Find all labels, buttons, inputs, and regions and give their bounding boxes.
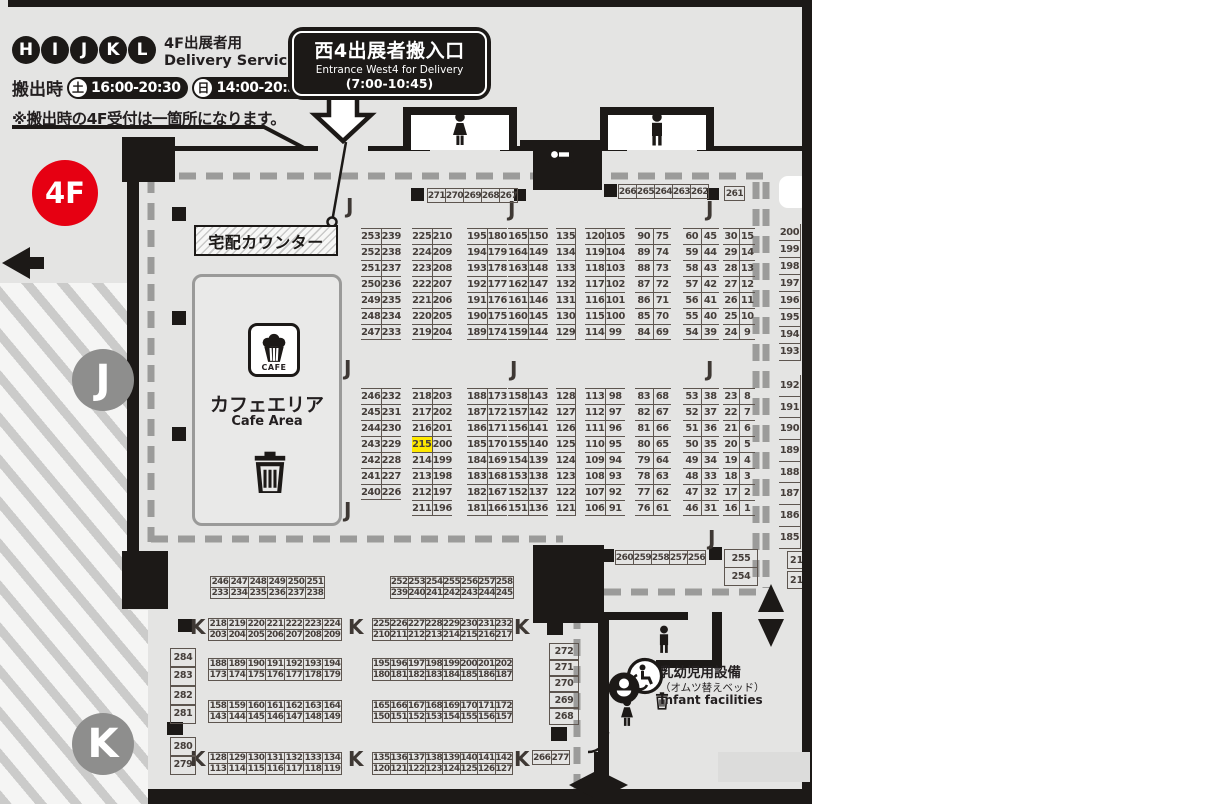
booth-cell: 61: [654, 500, 672, 516]
booth-cell: 224: [322, 619, 342, 629]
booth-cell: 127: [495, 764, 514, 774]
booth-cell: 201: [433, 420, 453, 436]
booth-cell: 28: [723, 260, 740, 276]
booth-cell: 1: [740, 500, 756, 516]
booth-cell: 11: [740, 292, 756, 308]
booth-cell: 185: [460, 670, 478, 680]
booth-cell: 266: [532, 751, 551, 764]
booth-cell: 118: [303, 764, 322, 774]
booth-cell: 231: [477, 619, 495, 629]
booth-cell: 127: [556, 404, 576, 420]
booth-cell: 113: [585, 388, 606, 404]
booth-cell: 211: [390, 630, 408, 640]
booth-cell: 207: [433, 276, 453, 292]
booth-cell: 190: [779, 418, 801, 440]
booth-cell: 203: [208, 630, 227, 640]
booth-cell: 163: [303, 701, 322, 711]
booth-cell: 235: [248, 588, 267, 598]
booth-cell: 181: [467, 500, 488, 516]
booth-cell: 9: [740, 324, 756, 340]
booth-cell: 10: [740, 308, 756, 324]
booth-cell: 205: [433, 308, 453, 324]
booth-cell: 162: [508, 276, 529, 292]
booth-cell: 47: [683, 484, 702, 500]
booth-cell: 123: [556, 468, 576, 484]
booth-cell: 180: [488, 228, 508, 244]
booth-cell: 167: [407, 701, 425, 711]
booth-cell: 143: [529, 388, 549, 404]
booth-cell: 250: [361, 276, 382, 292]
booth-cell: 247: [361, 324, 382, 340]
booth-strip: 9075897488738772867185708469: [635, 228, 671, 340]
booth-cell: 178: [303, 670, 322, 680]
booth-cell: 160: [246, 701, 265, 711]
floor-badge: 4F: [32, 160, 98, 226]
booth-cell: 240: [408, 588, 426, 598]
wall-gap: [718, 752, 810, 782]
booth-cell: 158: [508, 388, 529, 404]
booth-cell: 104: [606, 244, 626, 260]
entrance-title: 西4出展者搬入口: [314, 36, 464, 63]
booth-cell: 156: [508, 420, 529, 436]
booth-cell: 72: [654, 276, 672, 292]
booth-cell: 146: [529, 292, 549, 308]
booth-cell: 217: [412, 404, 433, 420]
booth-cell: 144: [529, 324, 549, 340]
booth-cell: 89: [635, 244, 654, 260]
booth-cell: 150: [529, 228, 549, 244]
booth-cell: 94: [606, 452, 626, 468]
j-label: J: [706, 357, 713, 381]
booth-cell: 170: [488, 436, 508, 452]
booth-cell: 156: [477, 712, 495, 722]
booth-cell: 86: [635, 292, 654, 308]
booth-cell: 216: [477, 630, 495, 640]
booth-cell: 265: [636, 185, 654, 198]
booth-cell: 232: [382, 388, 402, 404]
booth-cell: 212: [412, 484, 433, 500]
booth-cell: 191: [467, 292, 488, 308]
booth-cell: 76: [635, 500, 654, 516]
booth-cell: 38: [702, 388, 720, 404]
booth-cell: 188: [467, 388, 488, 404]
booth-strip: 301529142813271226112510249: [723, 228, 755, 340]
booth-krow: 1281291301311321331341131141151161171181…: [208, 752, 342, 775]
booth-cell: 55: [683, 308, 702, 324]
booth-krow: 1581591601611621631641431441451461471481…: [208, 700, 342, 723]
booth-cell: 112: [585, 404, 606, 420]
booth-cell: 139: [529, 452, 549, 468]
booth-cell: 109: [585, 452, 606, 468]
booth-cell: 199: [433, 452, 453, 468]
booth-cell: 204: [227, 630, 246, 640]
booth-cell: 20: [723, 436, 740, 452]
infant-line3: Infant facilities: [660, 694, 764, 708]
booth-cell: 226: [390, 619, 408, 629]
booth-cell: 66: [654, 420, 672, 436]
booth-cell: 82: [635, 404, 654, 420]
booth-cell: 116: [585, 292, 606, 308]
booth-row: 271270269268267: [427, 188, 518, 203]
booth-cell: 113: [208, 764, 227, 774]
booth-cell: 166: [390, 701, 408, 711]
booth-cell: 222: [284, 619, 303, 629]
booth-cell: 188: [208, 659, 227, 669]
booth-cell: 136: [390, 753, 408, 763]
booth-cell: 213: [425, 630, 443, 640]
booth-cell: 35: [702, 436, 720, 452]
booth-cell: 233: [210, 588, 229, 598]
booth-cell: 54: [683, 324, 702, 340]
booth-cell: 138: [425, 753, 443, 763]
booth-cell: 165: [508, 228, 529, 244]
booth-cell: 269: [549, 691, 579, 709]
booth-cell: 36: [702, 420, 720, 436]
booth-cell: 134: [322, 753, 342, 763]
booth-cell: 18: [723, 468, 740, 484]
booth-cell: 186: [779, 505, 801, 527]
booth-cell: 221: [412, 292, 433, 308]
booth-cell: 250: [286, 577, 305, 587]
booth-cell: 254: [425, 577, 443, 587]
booth-strip: 53385237513650354934483347324631: [683, 388, 719, 516]
booth-cell: 21: [723, 420, 740, 436]
booth-cell: 241: [361, 468, 382, 484]
booth-cell: 233: [382, 324, 402, 340]
booth-cell: 187: [495, 670, 514, 680]
booth-cell: 25: [723, 308, 740, 324]
booth-cell: 23: [723, 388, 740, 404]
booth-cell: 253: [408, 577, 426, 587]
booth-cell: 117: [585, 276, 606, 292]
booth-cell: 229: [442, 619, 460, 629]
booth-cell: 205: [246, 630, 265, 640]
booth-cell: 154: [508, 452, 529, 468]
booth-cell: 243: [460, 588, 478, 598]
booth-cell: 128: [208, 753, 227, 763]
booth-cell: 44: [702, 244, 720, 260]
booth-cell: 267: [499, 189, 518, 202]
booth-cell: 14: [740, 244, 756, 260]
booth-cell: 136: [529, 500, 549, 516]
booth-cell: 194: [467, 244, 488, 260]
booth-cell: 195: [467, 228, 488, 244]
booth-cell: 221: [265, 619, 284, 629]
k-label: K: [190, 615, 206, 639]
booth-cell: 126: [477, 764, 495, 774]
booth-cell: 249: [361, 292, 382, 308]
booth-cell: 208: [433, 260, 453, 276]
booth-cell: 148: [529, 260, 549, 276]
booth-cell: 62: [654, 484, 672, 500]
booth-cell: 161: [508, 292, 529, 308]
booth-cell: 50: [683, 436, 702, 452]
booth-cell: 251: [305, 577, 325, 587]
booth-cell: 133: [556, 260, 576, 276]
booth-cell: 69: [654, 324, 672, 340]
booth-cell: 192: [467, 276, 488, 292]
booth-cell: 78: [635, 468, 654, 484]
booth-cell: 229: [382, 436, 402, 452]
booth-cell: 193: [467, 260, 488, 276]
booth-cell: 217: [495, 630, 514, 640]
booth-cell: 243: [361, 436, 382, 452]
booth-cell: 255: [724, 549, 758, 568]
booth-cell: 206: [265, 630, 284, 640]
booth-cell: 105: [606, 228, 626, 244]
booth-cell: 254: [724, 567, 758, 586]
booth-cell: 150: [372, 712, 390, 722]
facility-sign-icon: [546, 146, 574, 163]
j-label: J: [344, 498, 351, 522]
booth-cell: 155: [508, 436, 529, 452]
booth-cell: 122: [556, 484, 576, 500]
booth-cell: 228: [382, 452, 402, 468]
booth-cell: 206: [433, 292, 453, 308]
booth-pair: 282281: [170, 686, 196, 724]
k-label: K: [514, 615, 530, 639]
saturday-time: 16:00-20:30: [91, 80, 180, 96]
booth-cell: 51: [683, 420, 702, 436]
booth-cell: 19: [723, 452, 740, 468]
booth-cell: 58: [683, 260, 702, 276]
booth-cell: 138: [529, 468, 549, 484]
booth-cell: 235: [382, 292, 402, 308]
booth-strip: 238227216205194183172161: [723, 388, 755, 516]
booth-cell: 202: [495, 659, 514, 669]
booth-cell: 159: [227, 701, 246, 711]
booth-cell: 255: [443, 577, 461, 587]
booth-cell: 249: [267, 577, 286, 587]
booth-cell: 180: [372, 670, 390, 680]
booth-cell: 252: [390, 577, 408, 587]
booth-row: 266277: [532, 750, 570, 765]
booth-cell: 222: [412, 276, 433, 292]
booth-cell: 169: [442, 701, 460, 711]
booth-cell: 212: [407, 630, 425, 640]
times-label: 搬出時: [12, 75, 63, 100]
booth-cell: 171: [488, 420, 508, 436]
booth-cell: 149: [529, 244, 549, 260]
booth-cell: 227: [382, 468, 402, 484]
booth-cell: 270: [445, 189, 463, 202]
booth-cell: 188: [779, 462, 801, 484]
booth-cell: 130: [246, 753, 265, 763]
booth-cell: 181: [390, 670, 408, 680]
booth-cell: 148: [303, 712, 322, 722]
booth-cell: 190: [467, 308, 488, 324]
booth-cell: 70: [654, 308, 672, 324]
hall-badge-h: H: [12, 36, 40, 64]
j-label: J: [706, 197, 713, 221]
booth-cell: 102: [606, 276, 626, 292]
booth-cell: 98: [606, 388, 626, 404]
booth-cell: 45: [702, 228, 720, 244]
booth-cell: 13: [740, 260, 756, 276]
cafe-icon: CAFE: [248, 323, 300, 377]
booth-cell: 242: [443, 588, 461, 598]
booth-cell: 141: [477, 753, 495, 763]
booth-cell: 248: [361, 308, 382, 324]
booth-cell: 12: [740, 276, 756, 292]
booth-cell: 268: [549, 707, 579, 725]
booth-cell: 30: [723, 228, 740, 244]
booth-cell: 262: [690, 185, 709, 198]
booth-cell: 231: [382, 404, 402, 420]
booth-cell: 272: [549, 643, 579, 661]
booth-cell: 100: [606, 308, 626, 324]
booth-cell: 161: [265, 701, 284, 711]
booth-strip: 2462322452312442302432292422282412272402…: [361, 388, 401, 500]
booth-cell: 140: [460, 753, 478, 763]
booth-cell: 90: [635, 228, 654, 244]
entrance-callout: 西4出展者搬入口 Entrance West4 for Delivery (7:…: [288, 27, 491, 100]
booth-cell: 162: [284, 701, 303, 711]
booth-cell: 88: [635, 260, 654, 276]
booth-krow: 2182192202212222232242032042052062072082…: [208, 618, 342, 641]
booth-cell: 151: [508, 500, 529, 516]
booth-cell: 164: [508, 244, 529, 260]
baby-icon: [609, 673, 640, 704]
west-arrow-icon: [2, 247, 44, 279]
booth-cell: 197: [433, 484, 453, 500]
booth-cell: 157: [508, 404, 529, 420]
booth-cell: 107: [585, 484, 606, 500]
booth-cell: 271: [427, 189, 445, 202]
booth-cell: 232: [495, 619, 514, 629]
booth-cell: 56: [683, 292, 702, 308]
booth-cell: 194: [779, 327, 801, 344]
saturday-badge: 土: [69, 79, 87, 97]
booth-cell: 40: [702, 308, 720, 324]
booth-cell: 128: [556, 388, 576, 404]
booth-cell: 214: [412, 452, 433, 468]
booth-cell: 153: [508, 468, 529, 484]
booth-cell: 196: [390, 659, 408, 669]
booth-cell: 185: [779, 527, 801, 549]
booth-cell: 131: [265, 753, 284, 763]
booth-cell: 239: [382, 228, 402, 244]
infant-line2: （オムツ替えベッド）: [660, 682, 764, 694]
floor-map-4f: H I J K L 4F出展者用 Delivery Service 搬出時 土 …: [0, 0, 1206, 804]
booth-cell: 261: [724, 187, 745, 200]
booth-cell: 7: [740, 404, 756, 420]
booth-cell: 97: [606, 404, 626, 420]
booth-cell: 264: [654, 185, 672, 198]
booth-cell: 122: [407, 764, 425, 774]
booth-cell: 198: [425, 659, 443, 669]
booth-cell: 120: [372, 764, 390, 774]
booth-pair: 255254: [724, 549, 758, 586]
entrance-arrow-icon: [315, 97, 371, 141]
legend-note: ※搬出時の4F受付は一箇所になります。: [12, 107, 314, 129]
down-arrow-icon: [758, 619, 784, 647]
booth-cell: 140: [529, 436, 549, 452]
booth-cell: 209: [433, 244, 453, 260]
section-j-circle: J: [72, 349, 134, 411]
booth-cell: 158: [208, 701, 227, 711]
map-canvas: H I J K L 4F出展者用 Delivery Service 搬出時 土 …: [0, 0, 812, 804]
booth-cell: 186: [467, 420, 488, 436]
up-arrow-icon: [758, 584, 784, 612]
booth-cell: 224: [412, 244, 433, 260]
booth-cell: 101: [606, 292, 626, 308]
booth-cell: 201: [477, 659, 495, 669]
booth-cell: 173: [488, 388, 508, 404]
booth-cell: 165: [372, 701, 390, 711]
booth-cell: 246: [210, 577, 229, 587]
booth-cell: 171: [477, 701, 495, 711]
booth-cell: 176: [265, 670, 284, 680]
booth-cell: 172: [495, 701, 514, 711]
booth-cell: 234: [382, 308, 402, 324]
booth-cell: 24: [723, 324, 740, 340]
booth-cell: 152: [508, 484, 529, 500]
booth-cell: 192: [779, 375, 801, 397]
saturday-time-pill: 土 16:00-20:30: [67, 77, 188, 99]
booth-cell: 77: [635, 484, 654, 500]
booth-cell: 230: [460, 619, 478, 629]
man-small-icon: [660, 626, 668, 653]
booth-cell: 135: [372, 753, 390, 763]
booth-cell: 151: [390, 712, 408, 722]
booth-cell: 125: [556, 436, 576, 452]
booth-strip: 128127126125124123122121: [556, 388, 576, 516]
booth-cell: 256: [687, 551, 706, 564]
booth-cell: 121: [556, 500, 576, 516]
booth-cell: 237: [382, 260, 402, 276]
booth-cell: 179: [322, 670, 342, 680]
booth-cell: 268: [481, 189, 499, 202]
booth-cell: 246: [361, 388, 382, 404]
cafe-icon-label: CAFE: [262, 363, 287, 372]
booth-cell: 131: [556, 292, 576, 308]
booth-cell: 142: [529, 404, 549, 420]
hall-badge-k: K: [99, 36, 127, 64]
booth-pair: 280279: [170, 737, 196, 775]
booth-cell: 142: [495, 753, 514, 763]
booth-cell: 174: [227, 670, 246, 680]
booth-cell: 43: [702, 260, 720, 276]
booth-cell: 144: [227, 712, 246, 722]
infant-line1: 乳幼児用設備: [660, 666, 764, 682]
booth-cell: 245: [495, 588, 514, 598]
booth-column: 272271270269268: [549, 643, 579, 725]
booth-cell: 216: [412, 420, 433, 436]
booth-cell: 218: [412, 388, 433, 404]
booth-cell: 197: [779, 275, 801, 292]
booth-cell: 193: [779, 344, 801, 361]
booth-strip: 1581431571421561411551401541391531381521…: [508, 388, 548, 516]
booth-cell: 147: [284, 712, 303, 722]
booth-cell: 241: [425, 588, 443, 598]
booth-cell: 46: [683, 500, 702, 516]
booth-cell: 179: [488, 244, 508, 260]
booth-cell: 145: [246, 712, 265, 722]
booth-cell: 196: [433, 500, 453, 516]
booth-cell: 220: [246, 619, 265, 629]
booth-cell: 85: [635, 308, 654, 324]
booth-cell: 258: [651, 551, 669, 564]
booth-row: 261: [724, 186, 745, 201]
booth-strip: 2182032172022162012152002141992131982121…: [412, 388, 452, 516]
booth-cell: 168: [425, 701, 443, 711]
delivery-counter-label: 宅配カウンター: [194, 225, 338, 256]
booth-cell: 132: [284, 753, 303, 763]
j-label: J: [510, 357, 517, 381]
booth-cell: 49: [683, 452, 702, 468]
booth-cell: 223: [303, 619, 322, 629]
